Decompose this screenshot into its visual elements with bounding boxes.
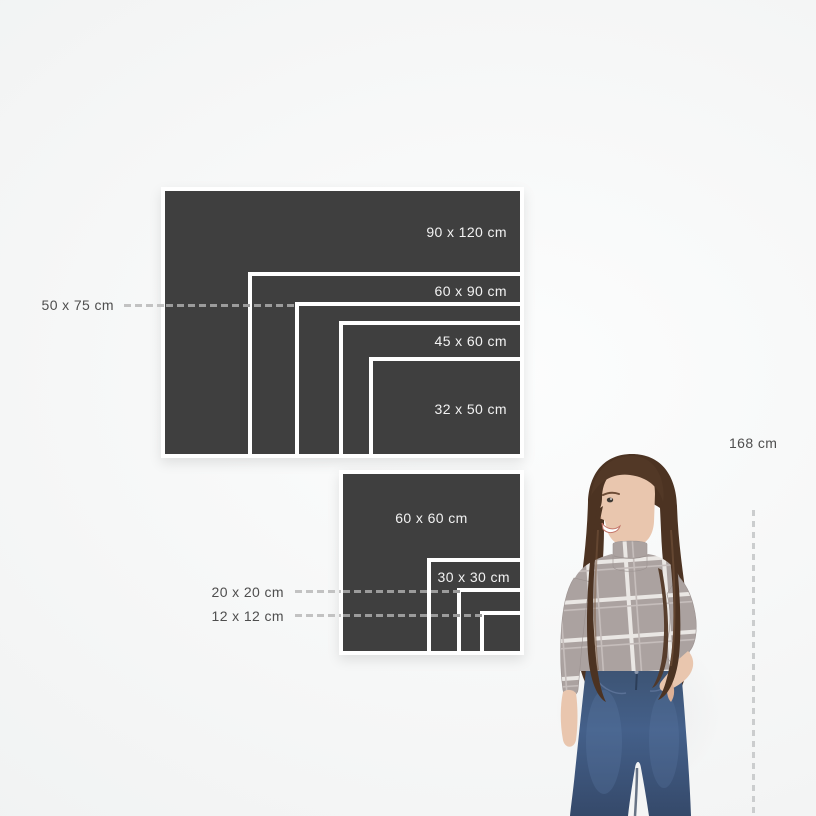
size-label-60x90: 60 x 90 cm [435, 283, 507, 299]
size-label-45x60: 45 x 60 cm [435, 333, 507, 349]
callout-line-50x75-inner [166, 304, 297, 307]
person-illustration [540, 450, 720, 816]
callout-line-12x12-outer [295, 614, 341, 617]
person-eye [607, 498, 613, 503]
callout-line-50x75-outer [124, 304, 166, 307]
size-label-90x120: 90 x 120 cm [426, 224, 507, 240]
person-figure [540, 450, 720, 816]
size-label-30x30: 30 x 30 cm [438, 569, 510, 585]
size-guide-canvas: 90 x 120 cm 60 x 90 cm 45 x 60 cm 32 x 5… [0, 0, 816, 816]
size-label-12x12: 12 x 12 cm [212, 608, 284, 624]
person-collar [613, 541, 647, 571]
person-eye-glint [610, 498, 612, 500]
callout-line-20x20-outer [295, 590, 341, 593]
person-jeans-wash-right [649, 692, 679, 788]
callout-line-20x20-inner [343, 590, 461, 593]
person-jeans-wash-left [586, 690, 622, 794]
size-label-60x60: 60 x 60 cm [343, 510, 520, 526]
person-left-hand [561, 690, 578, 747]
person-height-label: 168 cm [729, 435, 777, 451]
size-panel-12x12 [480, 611, 520, 651]
person-right-sleeve [666, 576, 697, 665]
callout-line-12x12-inner [343, 614, 484, 617]
size-label-20x20: 20 x 20 cm [212, 584, 284, 600]
person-jeans-inseam [635, 768, 637, 816]
size-label-50x75: 50 x 75 cm [42, 297, 114, 313]
size-label-32x50: 32 x 50 cm [435, 401, 507, 417]
